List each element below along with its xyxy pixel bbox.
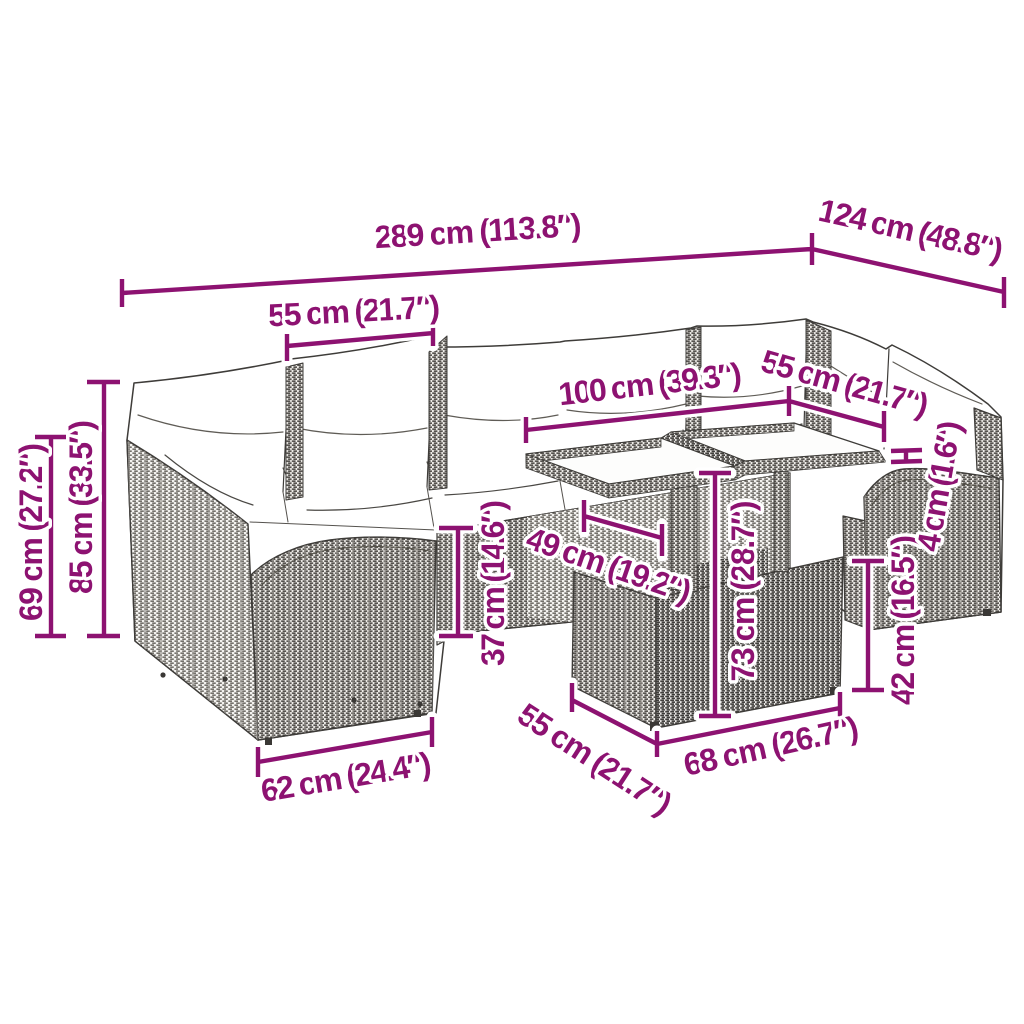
- svg-text:85 cm (33.5″): 85 cm (33.5″): [63, 420, 99, 594]
- svg-text:73 cm (28.7″): 73 cm (28.7″): [725, 501, 761, 682]
- svg-text:42 cm (16.5″): 42 cm (16.5″): [885, 535, 921, 705]
- svg-text:69 cm (27.2″): 69 cm (27.2″): [13, 443, 49, 621]
- svg-text:37 cm (14.6″): 37 cm (14.6″): [475, 500, 511, 666]
